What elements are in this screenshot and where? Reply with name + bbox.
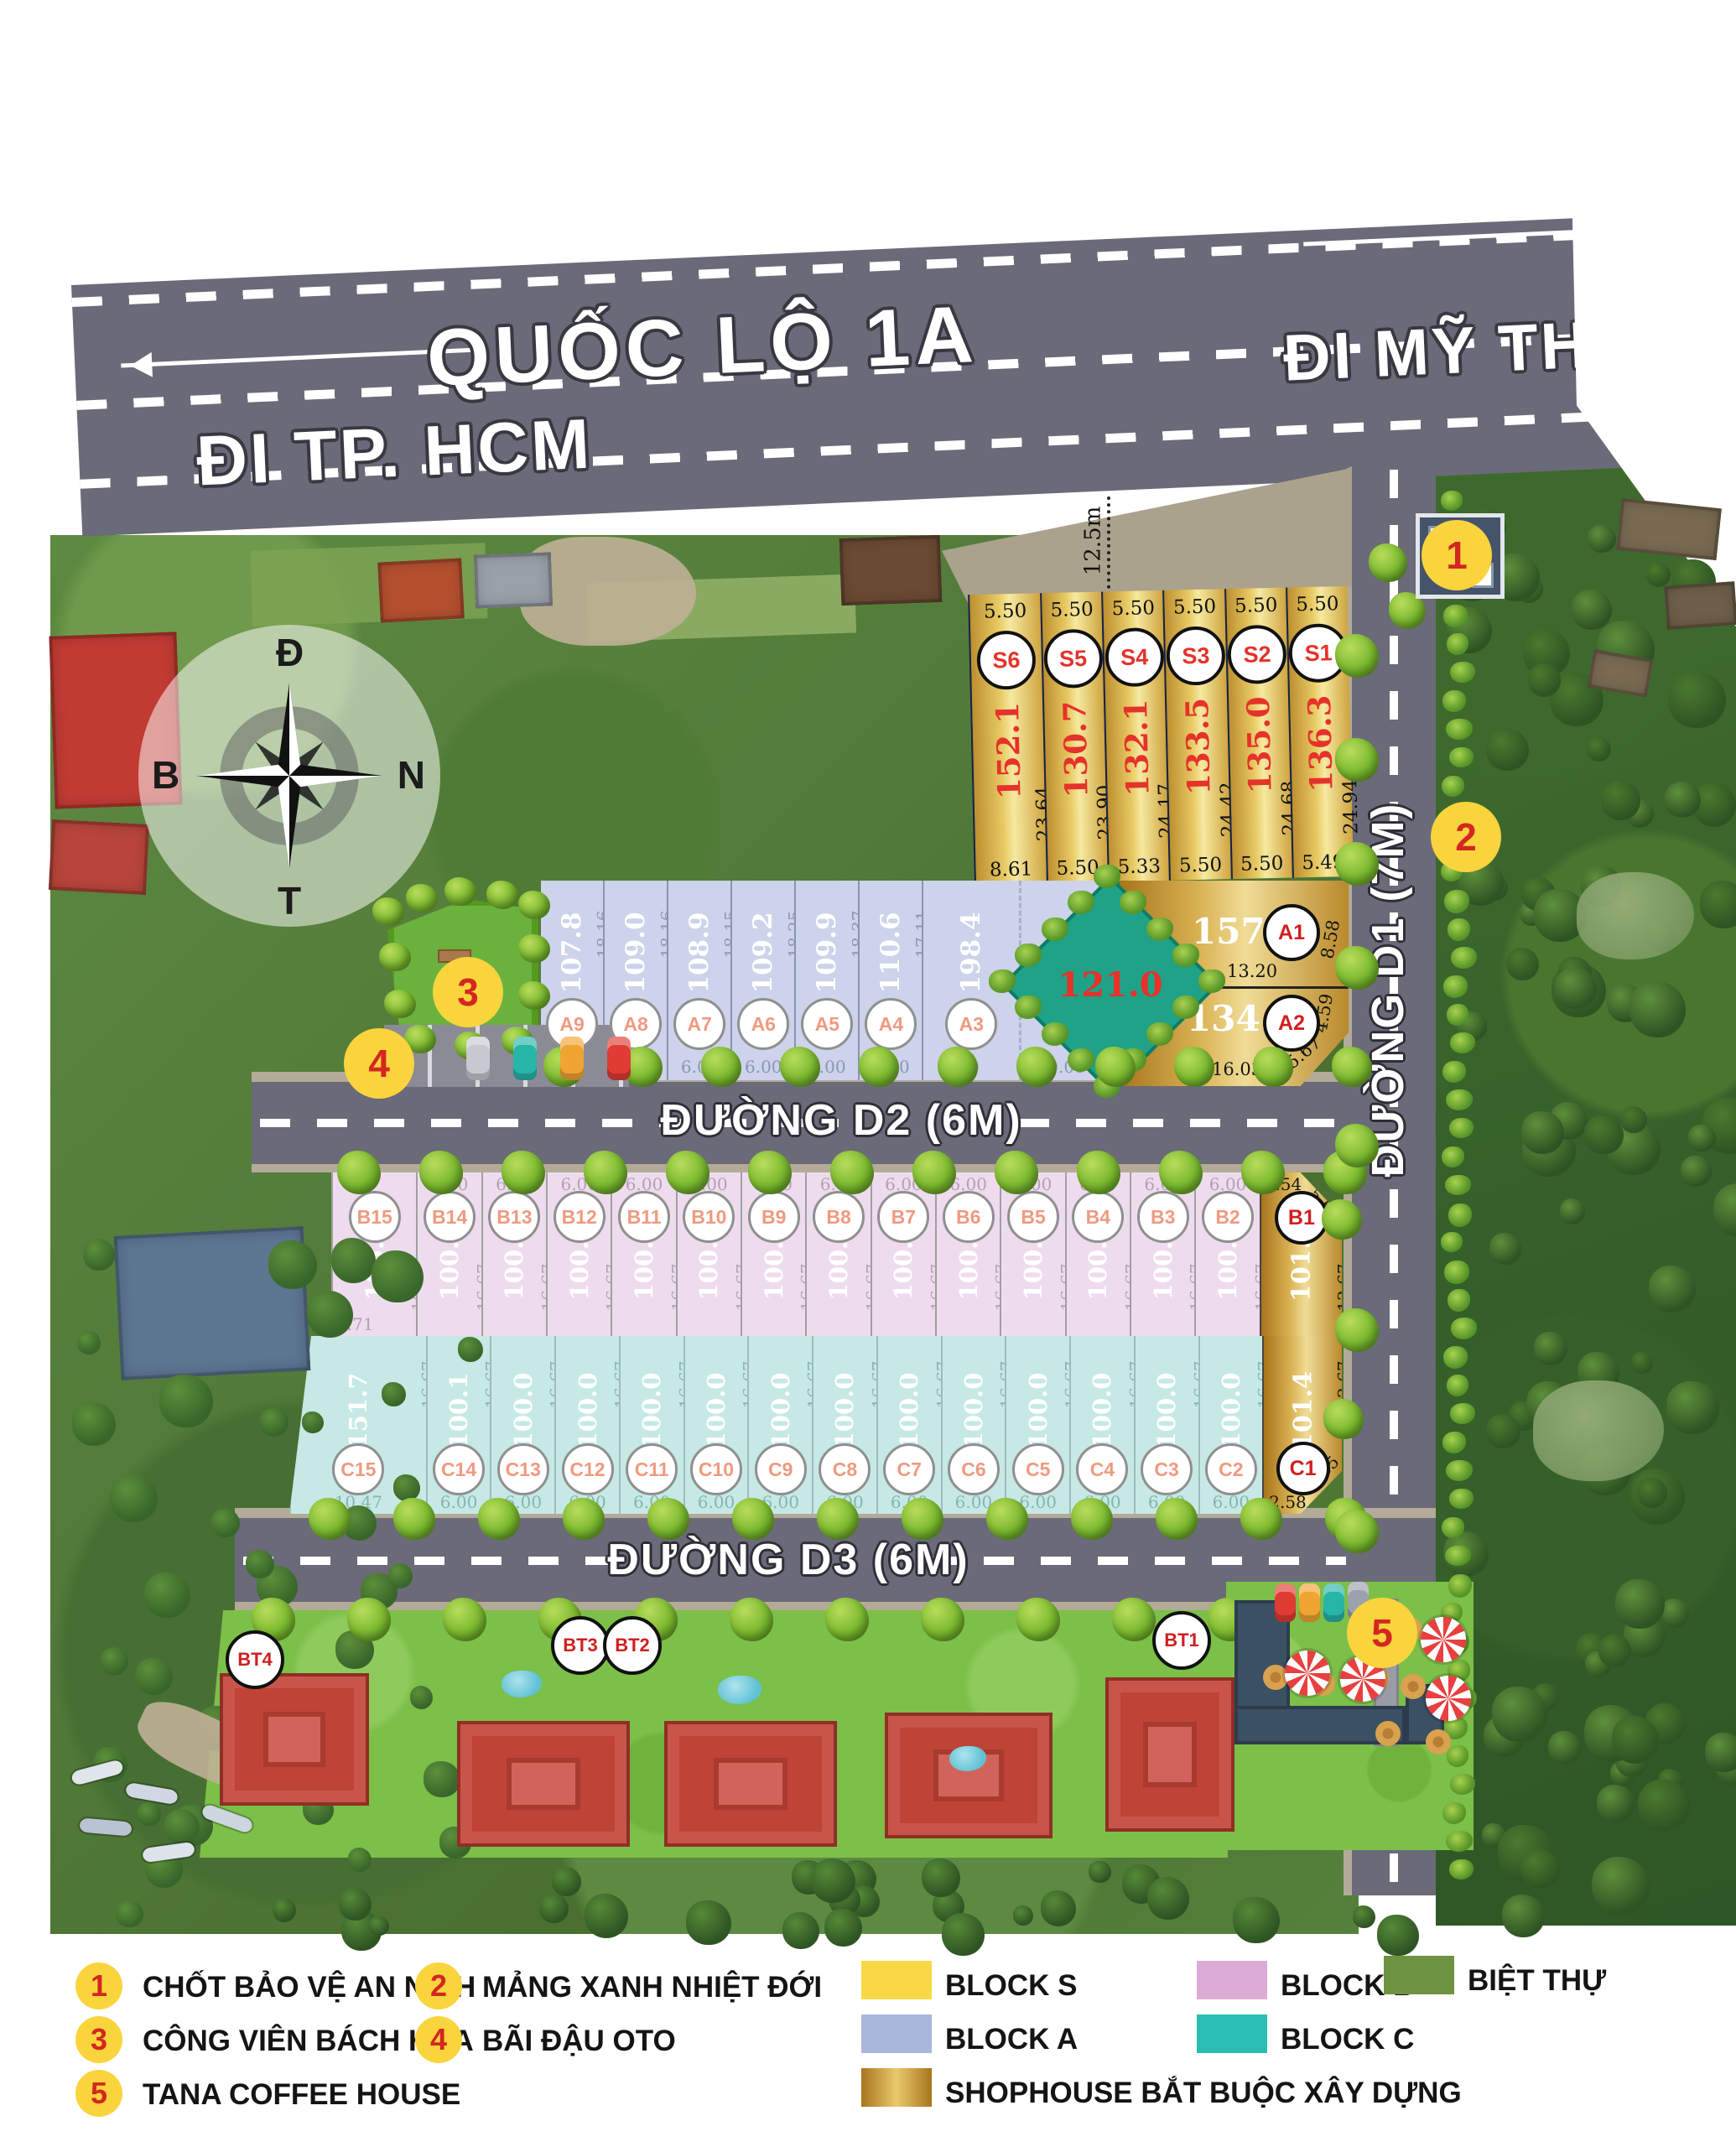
plot-id-badge[interactable]: C15: [332, 1443, 384, 1495]
plot-area: 100.0: [702, 1373, 730, 1449]
tree-icon: [1620, 1106, 1647, 1133]
compass-east: Đ: [276, 630, 304, 675]
tree-icon: [393, 1498, 435, 1540]
tree-icon: [1332, 1047, 1372, 1087]
tree-icon: [830, 1151, 874, 1194]
tree-icon: [686, 1900, 731, 1946]
table-icon: [1375, 1721, 1401, 1746]
tree-icon: [384, 990, 416, 1018]
tree-icon: [302, 1411, 324, 1433]
tree-icon: [1502, 1895, 1545, 1937]
plot-id-badge[interactable]: S4: [1104, 627, 1165, 688]
plot-id-badge[interactable]: A7: [673, 998, 725, 1050]
tree-icon: [1688, 1125, 1715, 1151]
car-icon: [560, 1037, 584, 1080]
plot-id-badge[interactable]: A4: [865, 998, 917, 1050]
plot-dim-bottom: 5.50: [1171, 854, 1231, 877]
villa-badge-bt4[interactable]: BT4: [226, 1630, 284, 1689]
plot-area: 107.8: [557, 912, 587, 993]
tree-icon: [912, 1151, 956, 1194]
tree-icon: [1528, 663, 1562, 697]
tree-icon: [986, 1498, 1028, 1540]
plot-C7[interactable]: 16.676.00100.0C7: [876, 1336, 941, 1514]
plot-S1[interactable]: 5.5024.945.49136.3S1: [1286, 586, 1354, 878]
plot-area: 100.0: [1152, 1373, 1181, 1449]
villa-badge-bt2[interactable]: BT2: [603, 1616, 662, 1675]
road-d2-centerline-2: [1019, 1119, 1346, 1127]
tree-icon: [921, 1598, 964, 1641]
plot-B4[interactable]: 6.0016.67100.0B4: [1065, 1172, 1130, 1336]
block-c: 16.6710.47151.7C1516.676.00100.1C1416.67…: [289, 1336, 1342, 1514]
umbrella-icon: [1421, 1617, 1466, 1662]
house-roof: [49, 819, 149, 895]
tree-icon: [1071, 1498, 1113, 1540]
plot-C14[interactable]: 16.676.00100.1C14: [426, 1336, 491, 1514]
palm-icon: [1172, 944, 1199, 967]
arrow-left-icon: [121, 348, 473, 368]
tree-icon: [116, 1900, 143, 1927]
map-marker-5[interactable]: 5: [1347, 1598, 1417, 1668]
tree-icon: [1323, 1399, 1364, 1439]
tree-icon: [268, 1240, 317, 1289]
compass-rose: Đ N T B: [138, 625, 440, 927]
table-icon: [1426, 1729, 1451, 1755]
plot-dim-top: 5.50: [1042, 599, 1102, 622]
tree-icon: [1597, 1785, 1635, 1822]
tree-icon: [337, 1151, 381, 1194]
tree-icon: [443, 1598, 486, 1641]
house-roof: [839, 535, 943, 606]
plot-area: 152.1: [989, 702, 1028, 800]
plot-id-badge[interactable]: C14: [433, 1443, 485, 1495]
tree-icon: [995, 1151, 1038, 1194]
tree-icon: [372, 1250, 424, 1302]
tree-icon: [164, 1809, 200, 1844]
tree-icon: [419, 1151, 463, 1194]
plot-B7[interactable]: 6.0016.67100.0B7: [871, 1172, 935, 1336]
plot-id-badge[interactable]: C5: [1012, 1443, 1064, 1495]
block-s: 5.5023.648.61152.1S65.5023.905.50130.7S5…: [968, 586, 1354, 885]
tree-icon: [922, 1858, 960, 1897]
plot-id-badge[interactable]: C10: [690, 1443, 742, 1495]
plot-id-badge[interactable]: B11: [618, 1191, 670, 1243]
plot-area: 100.0: [637, 1373, 666, 1449]
car-icon: [466, 1037, 490, 1080]
tree-icon: [1253, 1047, 1293, 1087]
plot-C6[interactable]: 16.676.00100.0C6: [941, 1336, 1006, 1514]
legend-swatch-block-a: [861, 2014, 932, 2053]
tree-icon: [1335, 1124, 1379, 1167]
tree-icon: [1520, 1849, 1560, 1889]
plot-area: 110.6: [876, 912, 906, 993]
plot-area: 132.1: [1117, 699, 1156, 797]
legend-label-5: TANA COFFEE HOUSE: [143, 2078, 460, 2112]
tree-icon: [309, 1498, 351, 1540]
plot-area: 100.0: [895, 1373, 923, 1449]
car-icon: [1323, 1583, 1344, 1622]
plot-id-badge[interactable]: B1: [1275, 1191, 1328, 1245]
plot-id-badge[interactable]: B15: [349, 1191, 401, 1243]
palm-icon: [1042, 1022, 1068, 1046]
legend-block-a: BLOCK A: [945, 2023, 1078, 2056]
plot-id-badge[interactable]: C13: [497, 1443, 549, 1495]
plot-S4[interactable]: 5.5024.175.33132.1S4: [1101, 590, 1169, 882]
tree-icon: [902, 1498, 943, 1540]
plot-area: 151.7: [344, 1373, 372, 1449]
plot-id-badge[interactable]: C6: [948, 1443, 1000, 1495]
plot-area: 108.9: [684, 912, 715, 993]
tree-icon: [1665, 782, 1701, 818]
villa-house: [1105, 1677, 1234, 1832]
plot-area: 100.0: [959, 1373, 988, 1449]
tree-icon: [859, 1047, 899, 1087]
tree-icon: [388, 1563, 413, 1588]
plot-B2[interactable]: 6.0016.67100.0B2: [1194, 1172, 1259, 1336]
tree-icon: [1377, 1915, 1419, 1957]
plot-id-badge[interactable]: S3: [1166, 626, 1226, 686]
plot-area: 100.0: [1088, 1373, 1116, 1449]
plot-id-badge[interactable]: B9: [748, 1191, 800, 1243]
map-marker-4[interactable]: 4: [344, 1028, 414, 1099]
tree-icon: [732, 1498, 774, 1540]
master-plan-map: QUỐC LỘ 1A ĐI TP. HCM ĐI MỸ THO 12.5m ĐƯ…: [0, 0, 1736, 2147]
plot-B13[interactable]: 6.0016.67100.0B13: [481, 1172, 546, 1336]
plot-B8[interactable]: 6.0016.67100.0B8: [805, 1172, 870, 1336]
legend-label-2: MẢNG XANH NHIỆT ĐỚI: [482, 1971, 822, 2004]
villa-badge-bt1[interactable]: BT1: [1152, 1611, 1211, 1670]
tree-icon: [1592, 1857, 1650, 1915]
plot-B12[interactable]: 6.0016.67100.0B12: [546, 1172, 611, 1336]
plot-id-badge[interactable]: C1: [1276, 1442, 1330, 1495]
tree-icon: [138, 1802, 160, 1825]
map-marker-2[interactable]: 2: [1431, 802, 1501, 872]
plot-area: 100.0: [509, 1373, 538, 1449]
tree-icon: [478, 1498, 520, 1540]
plot-C2[interactable]: 16.676.00100.0C2: [1198, 1336, 1263, 1514]
legend-marker-5: 5: [75, 2070, 122, 2117]
plot-id-badge[interactable]: B4: [1072, 1191, 1124, 1243]
legend-villa: BIỆT THỰ: [1468, 1964, 1606, 1998]
map-marker-1[interactable]: 1: [1422, 520, 1492, 590]
plot-C12[interactable]: 16.676.00100.0C12: [554, 1336, 619, 1514]
tree-icon: [1112, 1598, 1156, 1641]
tree-icon: [1486, 729, 1529, 772]
villa-house: [457, 1721, 630, 1847]
table-icon: [1401, 1674, 1426, 1699]
tree-icon: [552, 1867, 581, 1896]
tree-icon: [1548, 1731, 1582, 1765]
tree-icon: [1560, 1198, 1585, 1224]
tree-icon: [144, 1573, 190, 1618]
tree-icon: [1555, 968, 1596, 1009]
tree-icon: [730, 1598, 773, 1641]
umbrella-icon: [1426, 1676, 1471, 1721]
tree-icon: [1077, 1151, 1120, 1194]
tree-icon: [1095, 1047, 1136, 1087]
plot-dim-side: 24.94: [1339, 779, 1362, 834]
plot-id-badge[interactable]: S5: [1043, 629, 1104, 689]
tree-icon: [1615, 1579, 1664, 1628]
tree-icon: [782, 1912, 819, 1949]
plot-area: 133.5: [1178, 697, 1218, 795]
plot-id-badge[interactable]: A3: [945, 998, 997, 1050]
plot-area: 101.4: [1288, 1371, 1318, 1450]
tree-icon: [1089, 1861, 1111, 1884]
plot-id-badge[interactable]: C7: [883, 1443, 935, 1495]
tree-icon: [135, 1658, 172, 1695]
plot-area: 100.1: [444, 1373, 473, 1449]
plot-id-badge[interactable]: B2: [1202, 1191, 1254, 1243]
tree-icon: [1016, 1598, 1060, 1641]
tree-icon: [942, 1913, 984, 1955]
tree-icon: [1668, 671, 1726, 729]
plot-id-badge[interactable]: B14: [424, 1191, 476, 1243]
plot-id-badge[interactable]: A5: [801, 998, 853, 1050]
tree-icon: [1369, 543, 1407, 582]
plot-C3[interactable]: 16.676.00100.0C3: [1134, 1336, 1198, 1514]
legend-swatch-villa: [1384, 1956, 1454, 1994]
tree-icon: [1521, 1111, 1564, 1154]
plot-dim-bottom: 5.50: [1232, 852, 1292, 876]
tree-icon: [584, 1151, 627, 1194]
plot-S3[interactable]: 5.5024.425.50133.5S3: [1162, 589, 1230, 881]
tree-icon: [666, 1151, 709, 1194]
tree-icon: [748, 1151, 792, 1194]
plot-id-badge[interactable]: B5: [1007, 1191, 1059, 1243]
plot-dim-top: 5.50: [1226, 595, 1286, 618]
tree-icon: [101, 1647, 129, 1676]
tree-icon: [307, 1291, 353, 1337]
tree-icon: [1335, 842, 1379, 886]
tree-icon: [1666, 1381, 1719, 1434]
plot-area: 100.0: [574, 1373, 602, 1449]
tree-icon: [83, 1239, 115, 1271]
tree-icon: [1335, 1510, 1379, 1553]
tree-icon: [347, 1598, 391, 1641]
tree-icon: [1649, 1266, 1696, 1313]
plot-dim-divider: 13.20: [1227, 961, 1277, 981]
plot-area: 135.0: [1240, 696, 1279, 794]
tree-icon: [1629, 981, 1686, 1037]
legend-block-s: BLOCK S: [945, 1969, 1078, 2003]
compass-west: T: [278, 878, 301, 923]
villa-house: [664, 1721, 837, 1847]
tree-icon: [1534, 1332, 1567, 1365]
plot-id-badge[interactable]: A2: [1263, 995, 1320, 1052]
plot-B10[interactable]: 6.0016.67100.0B10: [676, 1172, 741, 1336]
tree-icon: [211, 1509, 240, 1537]
tree-icon: [458, 1337, 483, 1362]
plot-area: 130.7: [1056, 700, 1095, 798]
plot-C10[interactable]: 16.676.00100.0C10: [683, 1336, 748, 1514]
tree-icon: [260, 1408, 288, 1437]
map-marker-3[interactable]: 3: [433, 957, 503, 1027]
tree-icon: [518, 891, 550, 919]
plot-B6[interactable]: 6.0016.67100.0B6: [935, 1172, 1000, 1336]
tree-icon: [1572, 590, 1612, 630]
tree-icon: [273, 1898, 296, 1921]
direction-left: ĐI TP. HCM: [195, 403, 594, 502]
tree-icon: [1492, 1687, 1547, 1742]
tree-icon: [1631, 1352, 1653, 1374]
tree-icon: [1159, 1151, 1203, 1194]
legend-marker-1: 1: [75, 1962, 122, 2009]
plot-id-badge[interactable]: C2: [1205, 1443, 1257, 1495]
umbrella-icon: [1285, 1651, 1330, 1696]
road-d3-centerline: [243, 1557, 646, 1565]
plot-area: 109.2: [748, 912, 778, 993]
plot-id-badge[interactable]: C8: [819, 1443, 871, 1495]
compass-star-icon: [189, 675, 390, 876]
plot-id-badge[interactable]: B13: [488, 1191, 540, 1243]
plot-C4[interactable]: 16.676.00100.0C4: [1069, 1336, 1134, 1514]
plot-C5[interactable]: 16.676.00100.0C5: [1005, 1336, 1069, 1514]
legend-swatch-shophouse: [861, 2068, 932, 2107]
tree-icon: [1156, 1498, 1198, 1540]
tree-icon: [1681, 1156, 1712, 1187]
plot-A6[interactable]: 18.256.00109.2A6: [730, 881, 794, 1080]
tree-icon: [1489, 1233, 1521, 1265]
plot-B5[interactable]: 6.0016.67100.0B5: [1000, 1172, 1064, 1336]
tree-icon: [1588, 525, 1616, 554]
tree-icon: [824, 1909, 862, 1947]
tree-icon: [339, 1888, 372, 1921]
plot-id-badge[interactable]: C4: [1076, 1443, 1128, 1495]
road-d3-centerline-2: [927, 1557, 1346, 1565]
plot-area: 100.0: [1024, 1373, 1053, 1449]
temple-roof: [1616, 498, 1722, 560]
tree-icon: [1637, 1478, 1667, 1508]
plot-B3[interactable]: 6.0016.67100.0B3: [1130, 1172, 1194, 1336]
plot-id-badge[interactable]: A6: [737, 998, 789, 1050]
plot-dim-top: 5.50: [1287, 593, 1348, 616]
plot-dim-top: 5.50: [1165, 595, 1225, 619]
plot-dim-top: 5.50: [1103, 597, 1163, 621]
tree-icon: [1335, 946, 1379, 990]
tree-icon: [1233, 1897, 1279, 1943]
tree-icon: [410, 1686, 433, 1708]
palm-icon: [1042, 918, 1068, 941]
setback-dim-line: [1107, 496, 1110, 595]
plot-id-badge[interactable]: B12: [554, 1191, 606, 1243]
tree-icon: [938, 1047, 978, 1087]
plot-area: 136.3: [1301, 694, 1340, 793]
tree-icon: [1612, 1716, 1659, 1763]
plot-id-badge[interactable]: A1: [1263, 904, 1320, 961]
plot-dim-top: 5.50: [969, 600, 1041, 623]
plot-area: 109.9: [812, 912, 842, 993]
plot-C9[interactable]: 16.676.00100.0C9: [747, 1336, 812, 1514]
tree-icon: [1016, 1047, 1057, 1087]
tree-icon: [1174, 1047, 1214, 1087]
tree-icon: [1598, 1635, 1632, 1668]
plot-B14[interactable]: 6.0016.67100.0B14: [416, 1172, 481, 1336]
car-icon: [513, 1037, 537, 1080]
tree-icon: [1335, 738, 1379, 782]
tree-icon: [1147, 1877, 1190, 1920]
plot-id-badge[interactable]: C9: [755, 1443, 807, 1495]
legend-swatch-block-s: [861, 1961, 932, 1999]
plot-area: 100.0: [1217, 1373, 1245, 1449]
tree-icon: [825, 1598, 869, 1641]
plot-area: 100.0: [830, 1373, 859, 1449]
tree-icon: [486, 881, 518, 909]
tree-icon: [563, 1498, 605, 1540]
tree-icon: [1322, 1199, 1362, 1240]
highway-name: QUỐC LỘ 1A: [425, 289, 980, 405]
road-d3-name: ĐƯỜNG D3 (6M): [607, 1535, 969, 1585]
house-roof: [474, 552, 553, 608]
plot-id-badge[interactable]: S2: [1227, 625, 1287, 685]
compass-north: B: [152, 752, 179, 798]
car-icon: [1275, 1583, 1296, 1622]
block-bc: 16.677.71105.6B156.0016.67100.0B146.0016…: [252, 1172, 1342, 1514]
plot-B11[interactable]: 6.0016.67100.0B11: [611, 1172, 675, 1336]
palm-icon: [1146, 918, 1173, 941]
plot-id-badge[interactable]: C11: [626, 1443, 678, 1495]
plot-id-badge[interactable]: C12: [562, 1443, 614, 1495]
tree-icon: [369, 1916, 388, 1936]
tree-icon: [1241, 1151, 1285, 1194]
tree-icon: [1486, 1414, 1520, 1448]
road-d2-name: ĐƯỜNG D2 (6M): [660, 1095, 1021, 1146]
plot-id-badge[interactable]: C3: [1141, 1443, 1193, 1495]
tree-icon: [379, 943, 411, 971]
villa-house: [220, 1673, 369, 1806]
tree-icon: [1661, 1599, 1690, 1628]
tree-icon: [110, 1474, 158, 1522]
plot-S5[interactable]: 5.5023.905.50130.7S5: [1040, 592, 1108, 884]
tree-icon: [424, 1761, 460, 1798]
tree-icon: [817, 1498, 859, 1540]
legend-swatch-block-b: [1197, 1961, 1267, 1999]
plot-area: 100.0: [767, 1373, 795, 1449]
tree-icon: [811, 1858, 855, 1903]
plot-S6[interactable]: 5.5023.648.61152.1S6: [968, 593, 1047, 885]
tree-icon: [1240, 1498, 1282, 1540]
tree-icon: [246, 1550, 274, 1578]
villa-badge-bt3[interactable]: BT3: [551, 1616, 610, 1675]
palm-icon: [1068, 1048, 1094, 1072]
plot-id-badge[interactable]: S6: [976, 630, 1037, 690]
legend-marker-3: 3: [75, 2016, 122, 2063]
tree-icon: [1335, 634, 1379, 678]
plot-id-badge[interactable]: B3: [1137, 1191, 1189, 1243]
plot-id-badge[interactable]: B7: [877, 1191, 929, 1243]
plot-id-badge[interactable]: B8: [813, 1191, 865, 1243]
plot-id-badge[interactable]: B10: [683, 1191, 735, 1243]
plot-C11[interactable]: 16.676.00100.0C11: [619, 1336, 683, 1514]
tree-icon: [331, 1238, 376, 1282]
plot-S2[interactable]: 5.5024.685.50135.0S2: [1224, 588, 1292, 880]
villa-house: [885, 1713, 1053, 1838]
plot-id-badge[interactable]: B6: [943, 1191, 995, 1243]
tree-icon: [1646, 562, 1671, 586]
compass-south: N: [398, 752, 425, 798]
plot-C13[interactable]: 16.676.00100.0C13: [490, 1336, 554, 1514]
tree-icon: [77, 1331, 101, 1354]
car-icon: [607, 1037, 631, 1080]
tree-icon: [585, 1894, 629, 1938]
legend-marker-2: 2: [415, 1962, 462, 2009]
tree-icon: [1041, 1890, 1077, 1926]
tree-icon: [1584, 1115, 1624, 1155]
tree-icon: [1353, 1905, 1375, 1928]
legend-label-4: BÃI ĐẬU OTO: [482, 2025, 676, 2058]
plot-B9[interactable]: 6.0016.67100.0B9: [741, 1172, 805, 1336]
plot-dim-bottom: 8.61: [975, 858, 1047, 881]
plot-C8[interactable]: 16.676.00100.0C8: [812, 1336, 876, 1514]
